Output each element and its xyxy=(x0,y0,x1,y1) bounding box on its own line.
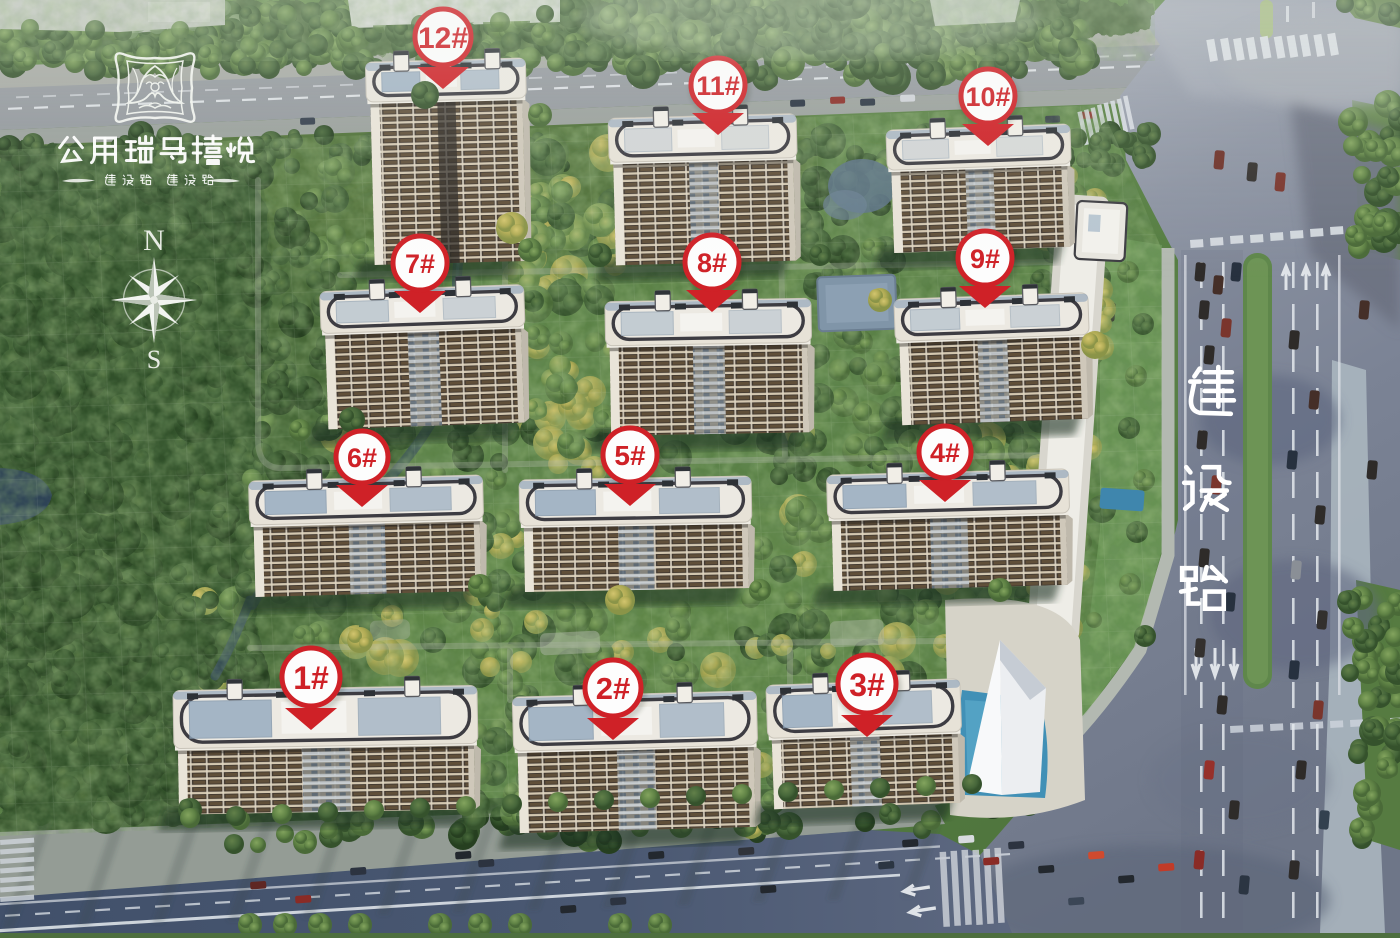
svg-text:2#: 2# xyxy=(596,671,630,706)
svg-text:1#: 1# xyxy=(293,660,329,696)
svg-text:S: S xyxy=(147,345,161,374)
svg-text:4#: 4# xyxy=(930,438,960,468)
svg-text:5#: 5# xyxy=(614,440,646,471)
svg-text:6#: 6# xyxy=(347,443,377,473)
svg-text:3#: 3# xyxy=(849,667,885,703)
